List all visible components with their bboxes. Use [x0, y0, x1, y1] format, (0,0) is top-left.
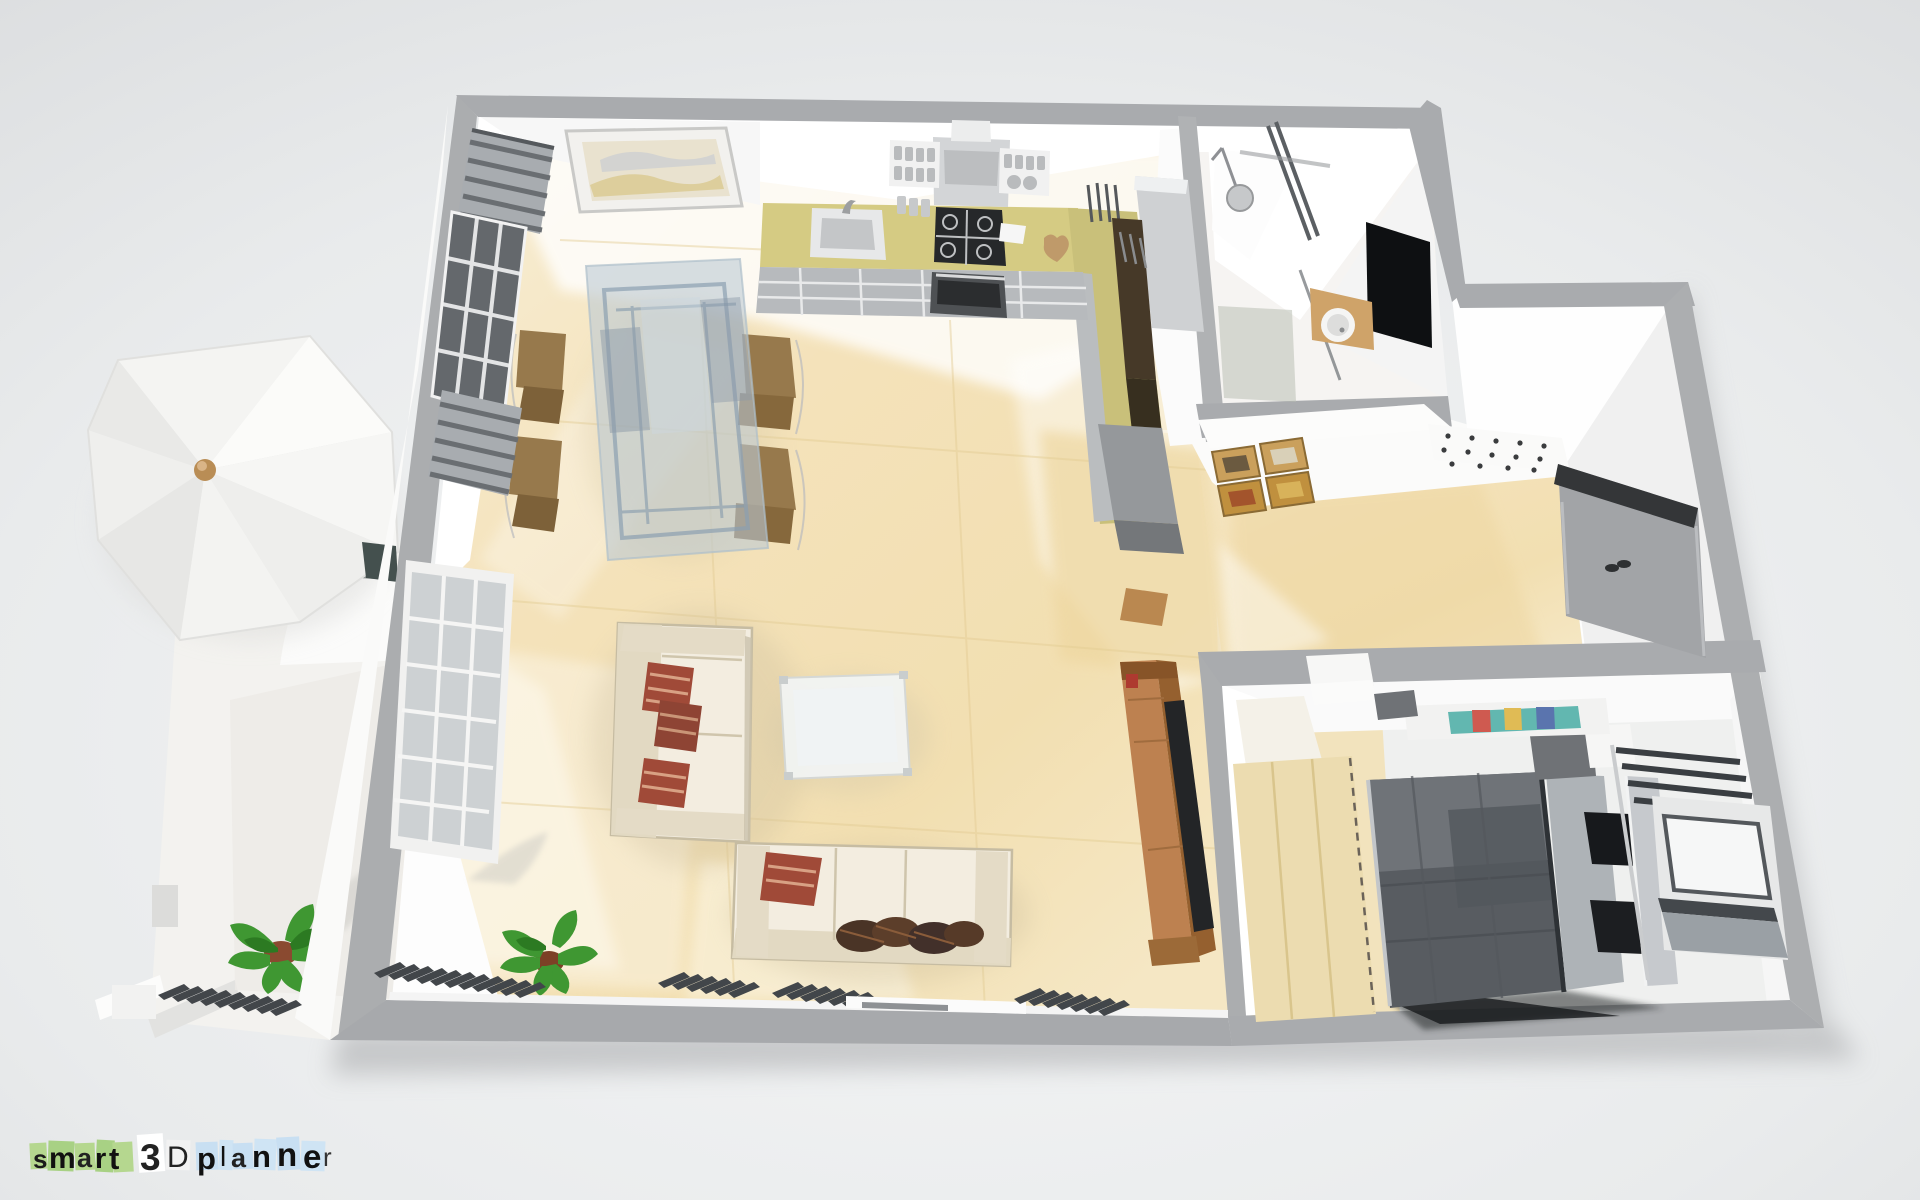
svg-text:a: a [231, 1143, 247, 1173]
svg-text:D: D [167, 1141, 189, 1174]
svg-text:3: 3 [140, 1137, 161, 1178]
svg-text:l: l [220, 1141, 226, 1172]
svg-text:s: s [33, 1144, 47, 1174]
svg-text:n: n [277, 1136, 297, 1173]
svg-text:e: e [303, 1138, 321, 1175]
svg-text:r: r [323, 1142, 332, 1172]
svg-text:m: m [49, 1142, 76, 1175]
svg-text:a: a [77, 1143, 93, 1173]
svg-text:n: n [252, 1139, 271, 1174]
svg-text:r: r [95, 1143, 106, 1175]
svg-text:t: t [109, 1141, 119, 1176]
svg-text:p: p [197, 1141, 216, 1176]
